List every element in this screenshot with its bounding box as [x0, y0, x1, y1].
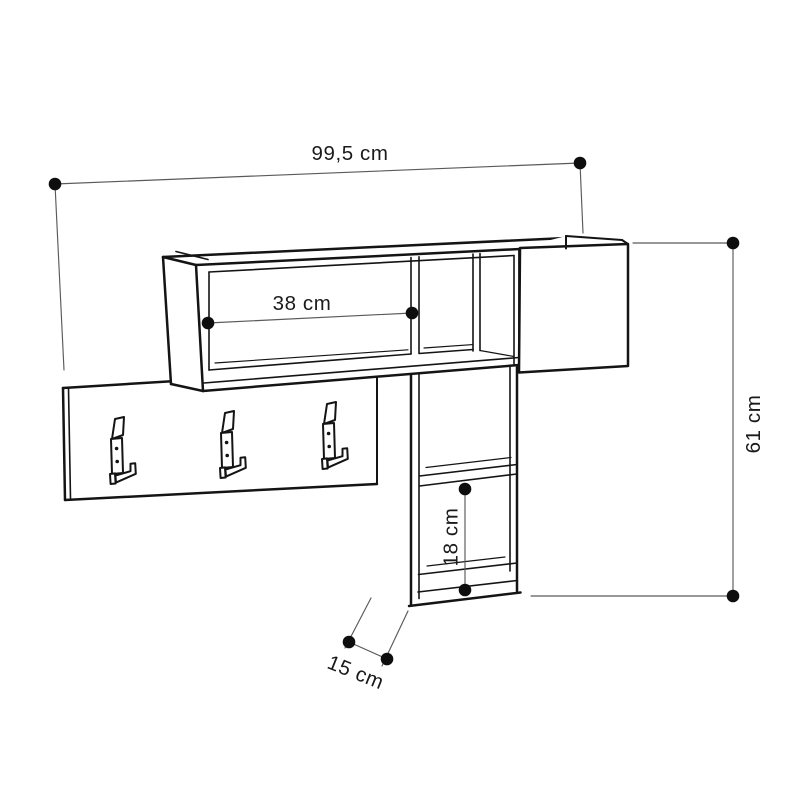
- dimension-endpoint-dot: [459, 584, 472, 597]
- right-box-front-face: [519, 244, 628, 373]
- dimension-endpoint-dot: [727, 237, 740, 250]
- dimension-endpoint-dot: [49, 178, 62, 191]
- furniture-dimension-diagram: 99,5 cm 38 cm 61 cm 18 cm 15 cm: [0, 0, 800, 800]
- extension-line: [55, 184, 64, 370]
- dimension-label-overall-height: 61 cm: [742, 395, 765, 454]
- dimension-line: [55, 163, 580, 184]
- upper-shelf-unit: [163, 238, 566, 391]
- dimension-endpoint-dot: [406, 307, 419, 320]
- dimension-endpoint-dot: [727, 590, 740, 603]
- dimension-label-depth: 15 cm: [324, 651, 387, 694]
- dimension-endpoint-dot: [574, 157, 587, 170]
- extension-line: [580, 163, 583, 233]
- dimension-cubby-height: 18 cm: [440, 483, 472, 597]
- dimension-label-overall-width: 99,5 cm: [311, 142, 388, 165]
- technical-drawing-page: 99,5 cm 38 cm 61 cm 18 cm 15 cm: [0, 0, 800, 800]
- dimension-endpoint-dot: [381, 653, 394, 666]
- dimension-endpoint-dot: [343, 636, 356, 649]
- right-open-box: [519, 236, 628, 373]
- dimension-depth: 15 cm: [324, 598, 408, 694]
- dimension-label-shelf-opening-width: 38 cm: [273, 292, 332, 315]
- dimension-label-cubby-height: 18 cm: [440, 508, 463, 567]
- dimension-endpoint-dot: [459, 483, 472, 496]
- dimension-endpoint-dot: [202, 317, 215, 330]
